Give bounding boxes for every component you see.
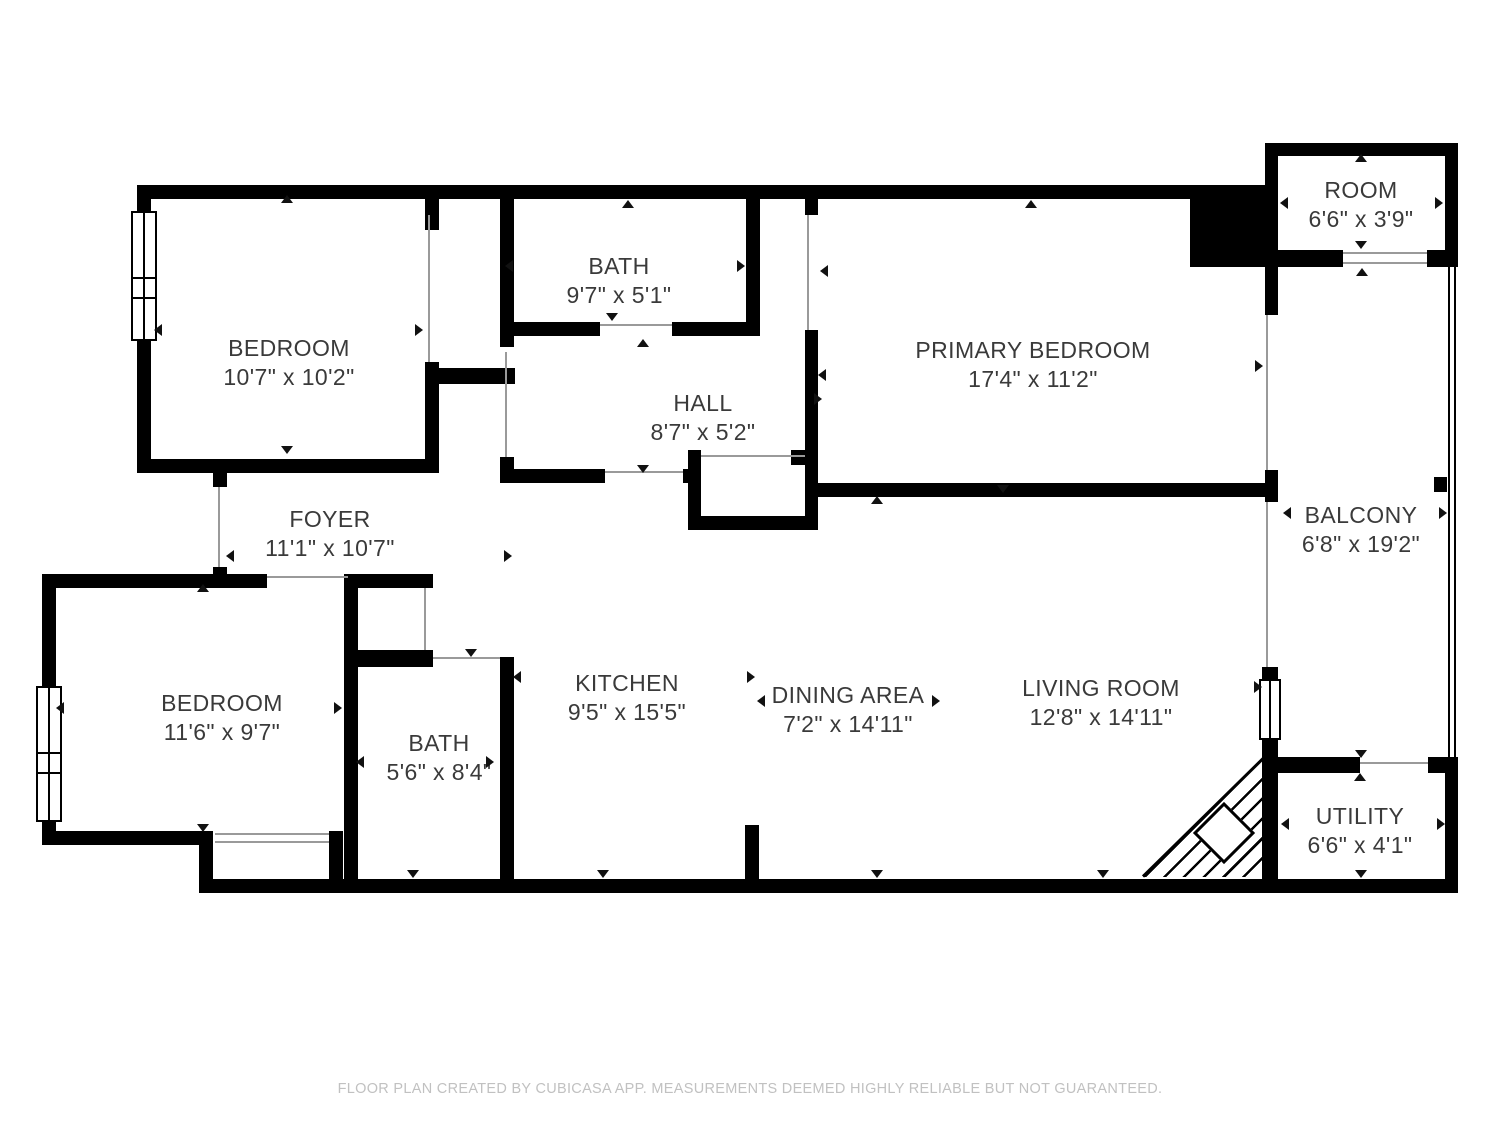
door-opening-line	[600, 324, 672, 326]
room-dimensions: 6'6" x 4'1"	[1308, 831, 1413, 860]
dimension-marker-icon	[747, 671, 755, 683]
door-opening-line	[1360, 762, 1428, 764]
room-label-balcony: BALCONY 6'8" x 19'2"	[1302, 501, 1420, 559]
wall-segment	[500, 469, 605, 483]
room-dimensions: 6'6" x 3'9"	[1309, 205, 1414, 234]
dimension-marker-icon	[154, 324, 162, 336]
door-opening-line	[1343, 252, 1427, 254]
room-name: PRIMARY BEDROOM	[915, 336, 1150, 365]
dimension-marker-icon	[1355, 750, 1367, 758]
room-dimensions: 6'8" x 19'2"	[1302, 530, 1420, 559]
dimension-marker-icon	[1097, 870, 1109, 878]
wall-segment	[818, 483, 1278, 497]
window-glass-line	[1269, 681, 1271, 738]
dimension-marker-icon	[197, 824, 209, 832]
wall-segment	[213, 574, 267, 588]
room-label-dining-area: DINING AREA 7'2" x 14'11"	[772, 681, 925, 739]
dimension-marker-icon	[1281, 818, 1289, 830]
room-dimensions: 9'5" x 15'5"	[568, 698, 686, 727]
door-opening-line	[701, 455, 805, 457]
window	[131, 211, 157, 341]
room-name: KITCHEN	[568, 669, 686, 698]
door-opening-line	[215, 841, 329, 843]
dimension-marker-icon	[226, 550, 234, 562]
wall-segment	[1265, 250, 1343, 267]
room-label-foyer: FOYER 11'1" x 10'7"	[265, 505, 395, 563]
room-name: BALCONY	[1302, 501, 1420, 530]
dimension-marker-icon	[637, 465, 649, 473]
wall-segment	[344, 574, 358, 893]
room-label-bedroom-top-left: BEDROOM 10'7" x 10'2"	[223, 334, 354, 392]
door-opening-line	[218, 487, 220, 567]
door-opening-line	[1266, 502, 1268, 667]
wall-segment	[42, 574, 56, 691]
door-opening-line	[807, 215, 809, 330]
dimension-marker-icon	[56, 702, 64, 714]
wall-segment	[419, 574, 433, 588]
wall-segment	[42, 574, 213, 588]
wall-segment	[1262, 738, 1278, 757]
wall-segment	[805, 185, 818, 215]
dimension-marker-icon	[1435, 197, 1443, 209]
wall-segment	[745, 825, 759, 879]
dimension-marker-icon	[1437, 818, 1445, 830]
wall-segment	[419, 650, 433, 667]
room-dimensions: 11'1" x 10'7"	[265, 534, 395, 563]
room-name: BEDROOM	[161, 689, 283, 718]
door-opening-line	[1343, 262, 1427, 264]
wall-segment	[1265, 143, 1278, 267]
dimension-marker-icon	[505, 260, 513, 272]
room-name: DINING AREA	[772, 681, 925, 710]
window	[1259, 679, 1281, 740]
dimension-marker-icon	[197, 584, 209, 592]
room-dimensions: 7'2" x 14'11"	[772, 710, 925, 739]
dimension-marker-icon	[1254, 681, 1262, 693]
dimension-marker-icon	[1025, 200, 1037, 208]
dimension-marker-icon	[334, 702, 342, 714]
dimension-marker-icon	[465, 649, 477, 657]
dimension-marker-icon	[1355, 241, 1367, 249]
door-opening-line	[267, 576, 348, 578]
dimension-marker-icon	[820, 265, 828, 277]
window-divider	[38, 752, 60, 754]
dimension-marker-icon	[1355, 154, 1367, 162]
room-dimensions: 12'8" x 14'11"	[1022, 703, 1180, 732]
wall-segment	[500, 322, 600, 336]
wall-segment	[137, 185, 1192, 199]
door-opening-line	[433, 657, 500, 659]
dimension-marker-icon	[1280, 197, 1288, 209]
dimension-marker-icon	[281, 195, 293, 203]
dimension-marker-icon	[504, 550, 512, 562]
dimension-marker-icon	[407, 870, 419, 878]
door-opening-line	[215, 833, 329, 835]
wall-segment	[137, 185, 151, 213]
room-name: BEDROOM	[223, 334, 354, 363]
dimension-marker-icon	[814, 393, 822, 405]
wall-segment	[688, 516, 818, 530]
room-label-primary-bedroom: PRIMARY BEDROOM 17'4" x 11'2"	[915, 336, 1150, 394]
wall-segment	[1454, 265, 1456, 757]
wall-segment	[1434, 477, 1447, 492]
wall-segment	[746, 185, 760, 336]
dimension-marker-icon	[415, 324, 423, 336]
wall-segment	[1445, 143, 1458, 267]
window-divider	[38, 772, 60, 774]
dimension-marker-icon	[606, 313, 618, 321]
wall-segment	[137, 459, 439, 473]
dimension-marker-icon	[871, 496, 883, 504]
room-dimensions: 11'6" x 9'7"	[161, 718, 283, 747]
window-divider	[133, 297, 155, 299]
wall-segment	[213, 459, 227, 487]
wall-segment	[500, 657, 514, 893]
dimension-marker-icon	[871, 870, 883, 878]
dimension-marker-icon	[818, 369, 826, 381]
wall-segment	[137, 340, 151, 473]
dimension-marker-icon	[997, 485, 1009, 493]
dimension-marker-icon	[1283, 507, 1291, 519]
wall-segment	[805, 330, 818, 483]
room-dimensions: 8'7" x 5'2"	[651, 418, 756, 447]
door-opening-line	[424, 588, 426, 650]
room-name: ROOM	[1309, 176, 1414, 205]
dimension-marker-icon	[597, 870, 609, 878]
room-dimensions: 10'7" x 10'2"	[223, 363, 354, 392]
room-label-bedroom-bottom-left: BEDROOM 11'6" x 9'7"	[161, 689, 283, 747]
dimension-marker-icon	[637, 339, 649, 347]
door-opening-line	[428, 215, 430, 362]
dimension-marker-icon	[281, 446, 293, 454]
dimension-marker-icon	[1354, 773, 1366, 781]
wall-segment	[1190, 185, 1277, 267]
footer-disclaimer: FLOOR PLAN CREATED BY CUBICASA APP. MEAS…	[338, 1081, 1163, 1097]
room-name: LIVING ROOM	[1022, 674, 1180, 703]
room-name: BATH	[387, 729, 492, 758]
dimension-marker-icon	[1439, 507, 1447, 519]
dimension-marker-icon	[737, 260, 745, 272]
room-label-living-room: LIVING ROOM 12'8" x 14'11"	[1022, 674, 1180, 732]
room-name: BATH	[567, 252, 672, 281]
window-glass-line	[48, 688, 50, 820]
room-dimensions: 17'4" x 11'2"	[915, 365, 1150, 394]
wall-segment	[1448, 265, 1450, 757]
room-label-hall: HALL 8'7" x 5'2"	[651, 389, 756, 447]
door-opening-line	[505, 352, 507, 457]
wall-segment	[1445, 757, 1458, 893]
wall-segment	[425, 368, 515, 384]
dimension-marker-icon	[1355, 870, 1367, 878]
room-label-room-top-right: ROOM 6'6" x 3'9"	[1309, 176, 1414, 234]
room-label-utility: UTILITY 6'6" x 4'1"	[1308, 802, 1413, 860]
room-label-kitchen: KITCHEN 9'5" x 15'5"	[568, 669, 686, 727]
room-name: FOYER	[265, 505, 395, 534]
dimension-marker-icon	[486, 756, 494, 768]
room-dimensions: 9'7" x 5'1"	[567, 281, 672, 310]
room-name: UTILITY	[1308, 802, 1413, 831]
floor-plan-canvas: BEDROOM 10'7" x 10'2" BATH 9'7" x 5'1" H…	[0, 0, 1500, 1125]
room-label-bath-top: BATH 9'7" x 5'1"	[567, 252, 672, 310]
dimension-marker-icon	[356, 756, 364, 768]
room-label-bath-bottom: BATH 5'6" x 8'4"	[387, 729, 492, 787]
window-divider	[133, 277, 155, 279]
dimension-marker-icon	[1356, 268, 1368, 276]
dimension-marker-icon	[513, 671, 521, 683]
dimension-marker-icon	[1255, 360, 1263, 372]
wall-segment	[1262, 757, 1278, 893]
room-dimensions: 5'6" x 8'4"	[387, 758, 492, 787]
window-glass-line	[143, 213, 145, 339]
dimension-marker-icon	[932, 695, 940, 707]
door-opening-line	[1266, 315, 1268, 470]
wall-segment	[1265, 470, 1278, 502]
wall-segment	[1265, 267, 1278, 315]
dimension-marker-icon	[757, 695, 765, 707]
wall-segment	[42, 831, 213, 845]
room-name: HALL	[651, 389, 756, 418]
dimension-marker-icon	[622, 200, 634, 208]
